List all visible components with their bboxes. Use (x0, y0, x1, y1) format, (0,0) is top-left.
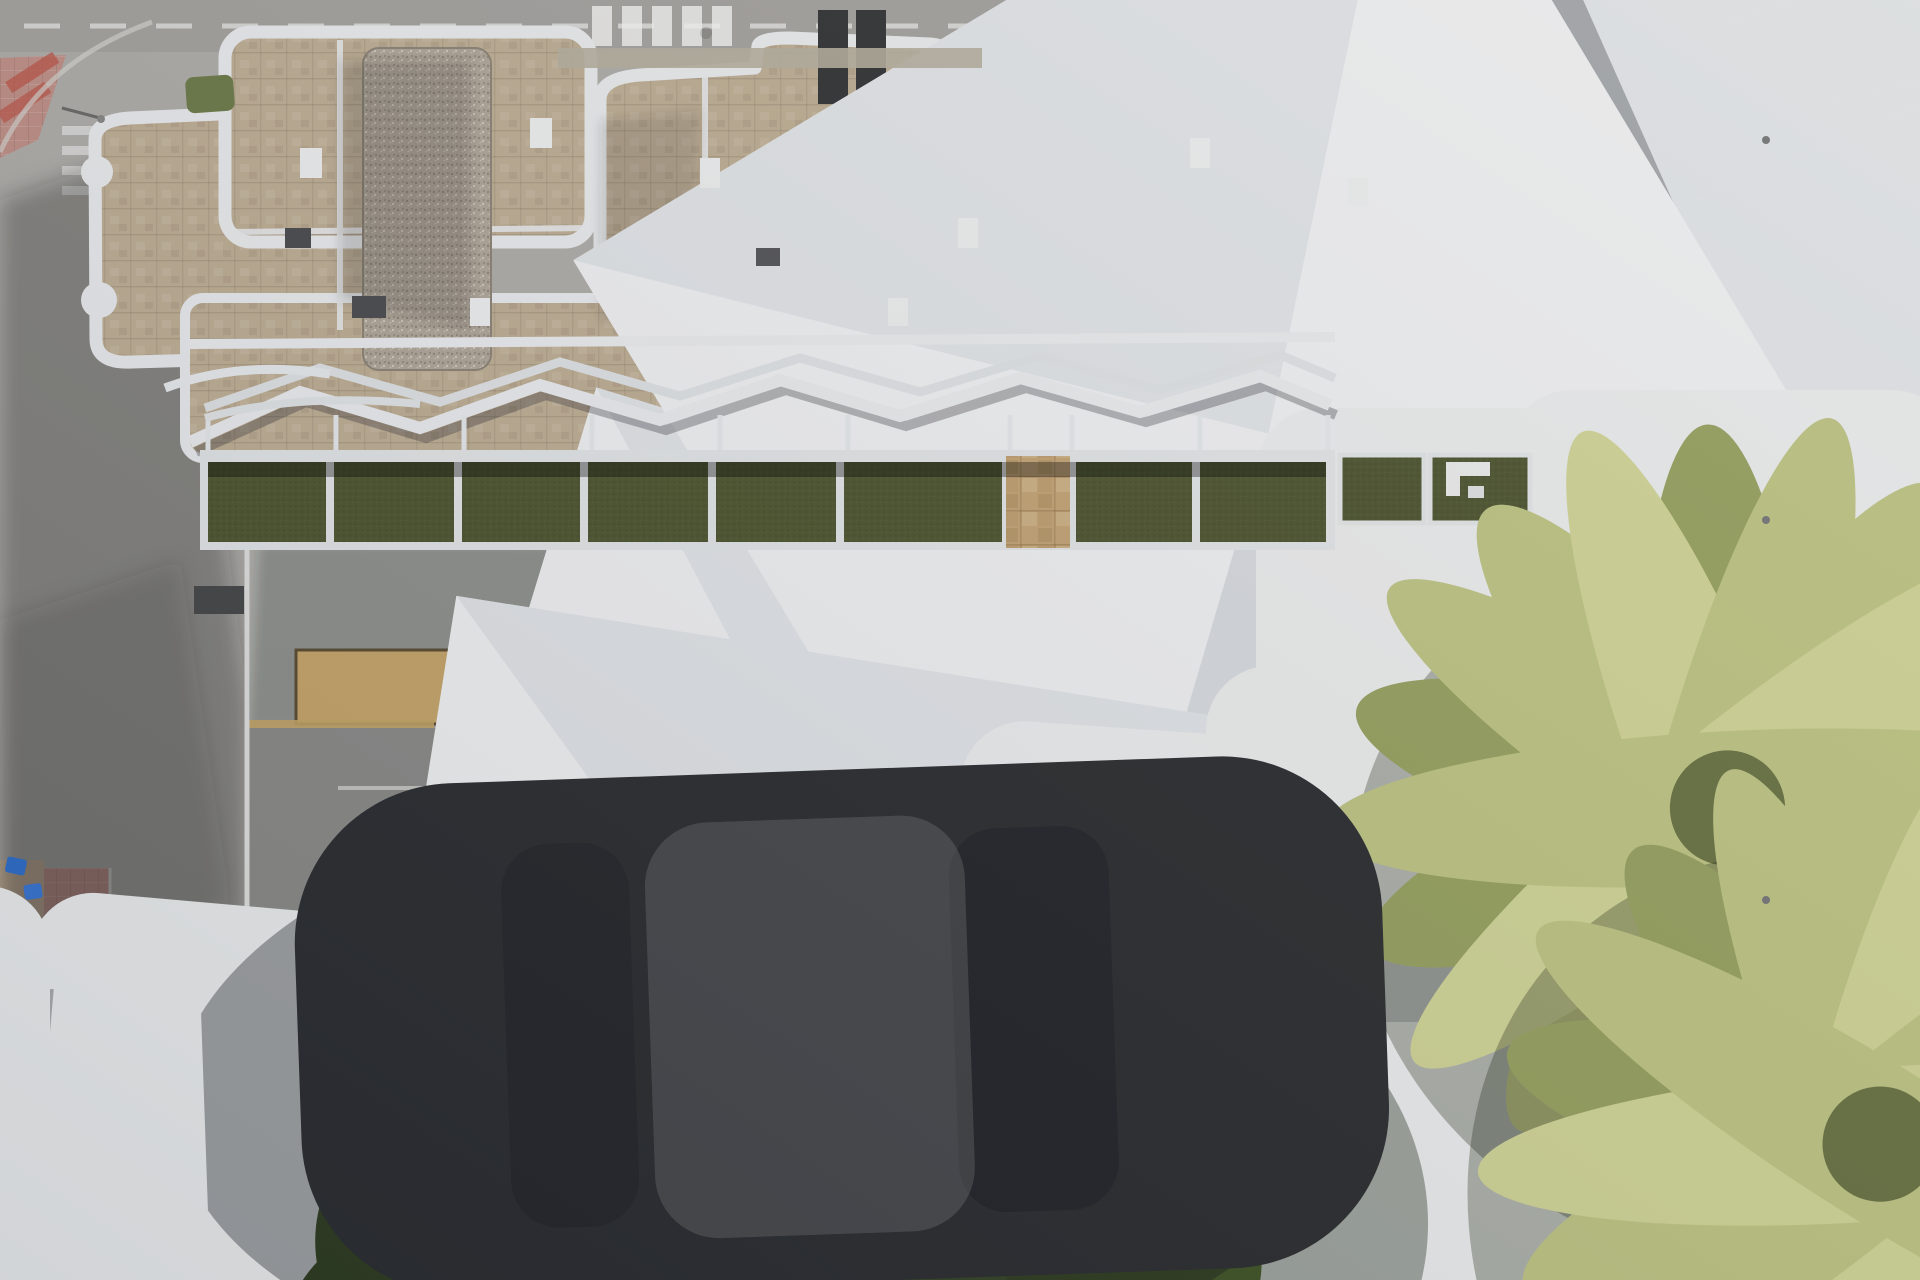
film-grain (0, 0, 1920, 1280)
aerial-scene: STOP (0, 0, 1920, 1280)
